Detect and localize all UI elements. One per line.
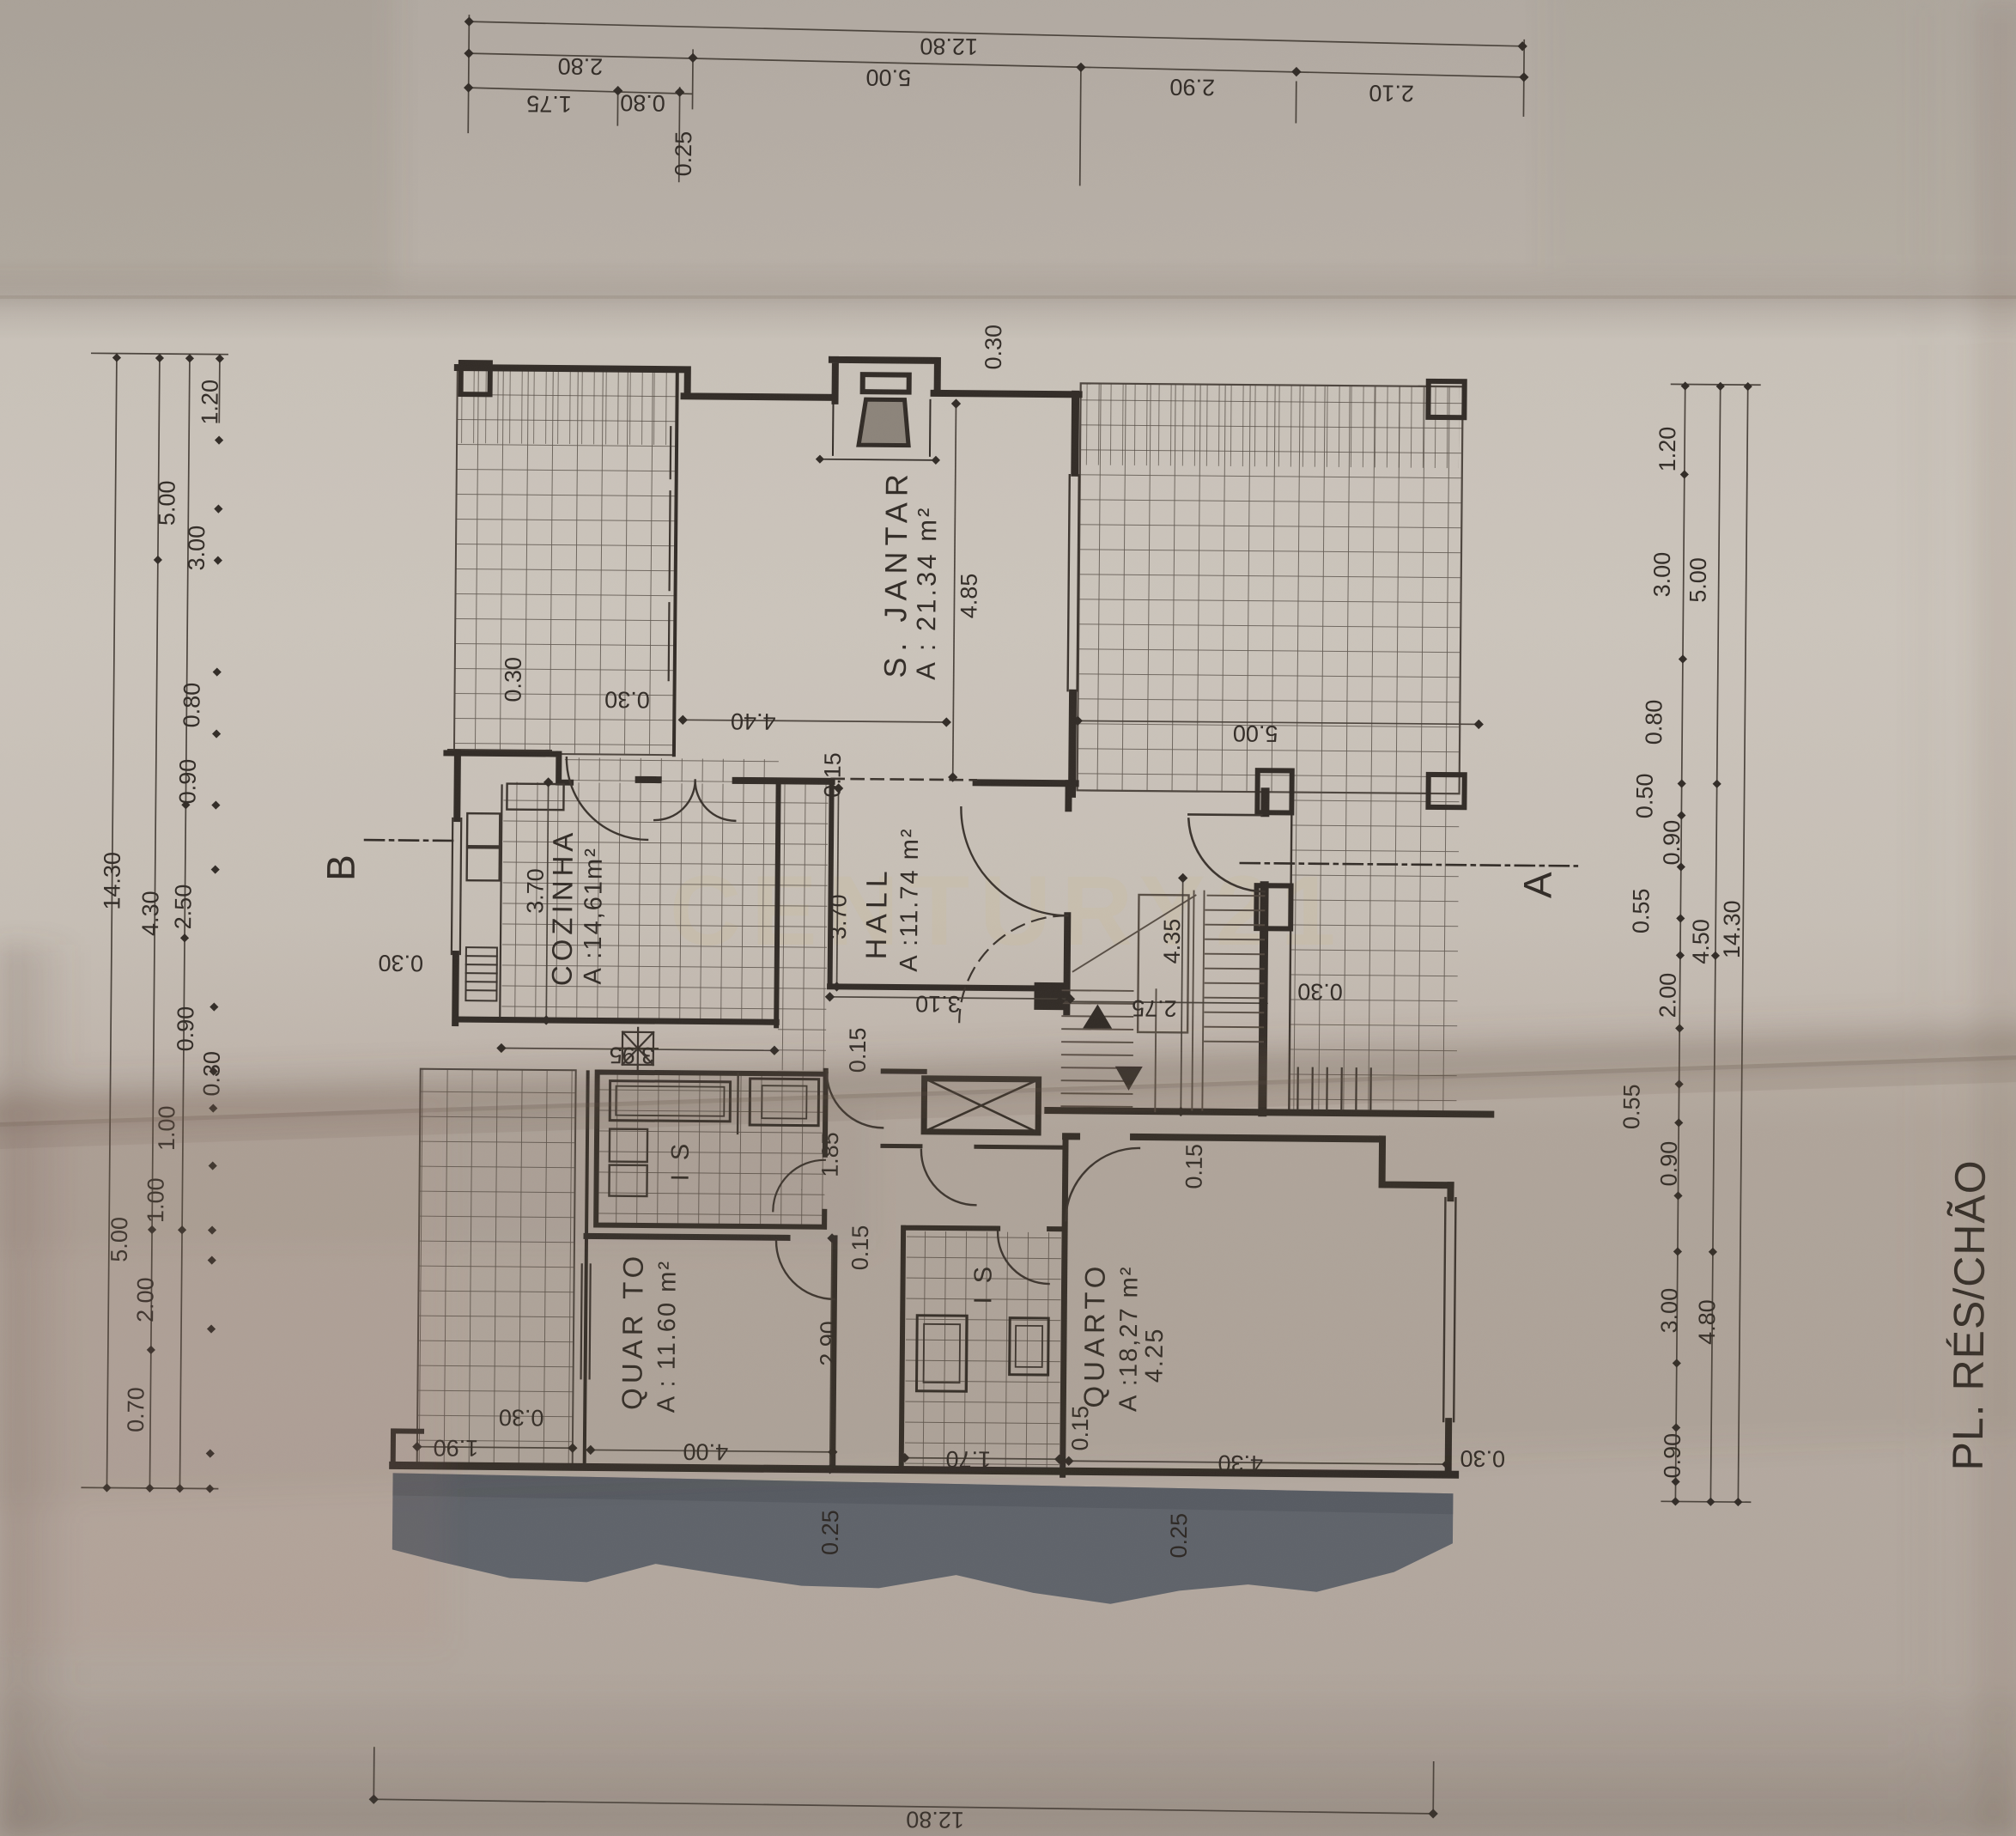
svg-text:5.00: 5.00: [1685, 557, 1711, 603]
svg-text:0.90: 0.90: [173, 1006, 198, 1052]
svg-text:0.50: 0.50: [1631, 773, 1657, 818]
svg-text:HALL: HALL: [860, 866, 894, 959]
svg-text:5.00: 5.00: [1233, 720, 1278, 746]
svg-text:2.10: 2.10: [1369, 80, 1414, 106]
svg-text:1.20: 1.20: [197, 380, 222, 425]
svg-text:14.30: 14.30: [99, 852, 125, 910]
svg-text:0.90: 0.90: [174, 759, 200, 805]
svg-text:COZINHA: COZINHA: [546, 828, 580, 986]
svg-text:4.50: 4.50: [1688, 919, 1714, 964]
svg-text:0.80: 0.80: [1641, 700, 1667, 745]
svg-text:0.15: 0.15: [819, 752, 845, 798]
svg-text:5.00: 5.00: [154, 480, 179, 526]
svg-text:0.25: 0.25: [671, 131, 696, 177]
svg-text:4.35: 4.35: [1159, 919, 1185, 964]
svg-text:0.30: 0.30: [604, 687, 650, 713]
svg-text:0.25: 0.25: [1166, 1513, 1192, 1559]
svg-text:0.30: 0.30: [981, 325, 1006, 370]
svg-text:2.80: 2.80: [557, 53, 603, 79]
svg-text:S. JANTAR: S. JANTAR: [877, 468, 914, 678]
svg-text:3.70: 3.70: [522, 868, 548, 914]
svg-text:0.80: 0.80: [179, 683, 204, 728]
svg-text:0.30: 0.30: [1297, 979, 1343, 1005]
svg-text:0.25: 0.25: [817, 1510, 843, 1555]
svg-text:2.00: 2.00: [1655, 973, 1680, 1018]
svg-text:3.10: 3.10: [915, 991, 961, 1017]
svg-text:2.90: 2.90: [1169, 74, 1215, 100]
svg-text:14.30: 14.30: [1719, 900, 1746, 958]
svg-text:0.30: 0.30: [378, 950, 423, 976]
svg-text:A :11.74 m²: A :11.74 m²: [896, 827, 924, 971]
svg-text:A: A: [1515, 872, 1559, 898]
svg-text:12.80: 12.80: [920, 33, 978, 60]
svg-text:0.55: 0.55: [1628, 888, 1654, 933]
svg-text:A :14,61m²: A :14,61m²: [580, 847, 608, 985]
svg-text:2.50: 2.50: [170, 885, 196, 930]
svg-text:3.00: 3.00: [1649, 552, 1675, 598]
svg-text:1.20: 1.20: [1655, 427, 1680, 472]
svg-text:5.00: 5.00: [865, 64, 911, 90]
svg-text:4.85: 4.85: [956, 574, 981, 619]
svg-text:A : 21.34 m²: A : 21.34 m²: [911, 506, 943, 680]
svg-text:3.00: 3.00: [184, 526, 209, 571]
svg-text:1.75: 1.75: [526, 91, 572, 117]
svg-text:B: B: [319, 854, 363, 881]
svg-text:0.90: 0.90: [1659, 820, 1685, 866]
svg-text:0.80: 0.80: [620, 90, 665, 116]
svg-text:4.40: 4.40: [731, 708, 776, 734]
svg-text:4.30: 4.30: [137, 891, 163, 936]
svg-text:0.30: 0.30: [500, 657, 525, 702]
svg-text:2.75: 2.75: [1132, 995, 1177, 1021]
svg-text:3.70: 3.70: [825, 894, 851, 939]
